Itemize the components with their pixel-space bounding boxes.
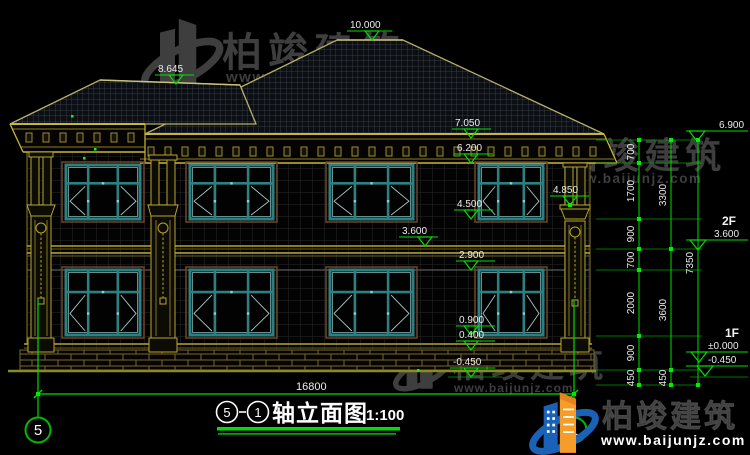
window-grip-dot <box>102 291 104 293</box>
window-frame <box>190 270 273 335</box>
chain-node <box>669 247 673 251</box>
dimension-value: 700 <box>626 251 637 268</box>
window-frame <box>479 270 543 335</box>
floor-label: 1F <box>725 326 739 340</box>
floor-label: 2F <box>722 214 736 228</box>
window-grip-dot <box>370 291 372 293</box>
chain-node <box>696 138 700 142</box>
dentil <box>335 147 341 156</box>
window <box>186 267 277 338</box>
dentil <box>369 147 375 156</box>
level-value: 3.600 <box>714 229 739 240</box>
window-grip-dot <box>87 312 89 314</box>
level-value: ±0.000 <box>708 341 739 352</box>
window <box>186 162 277 222</box>
dentil <box>573 147 579 156</box>
chain-node <box>637 247 641 251</box>
dentil <box>505 147 511 156</box>
dimension-value: 900 <box>626 344 637 361</box>
elevation-value: 4.850 <box>553 185 578 196</box>
window <box>326 267 417 338</box>
dimension-value: 450 <box>626 369 637 386</box>
footer-logo-url: www.baijunjz.com <box>600 432 746 448</box>
dentil <box>216 147 222 156</box>
window-grip-dot <box>117 200 119 202</box>
dentil <box>77 133 83 142</box>
dentil <box>556 147 562 156</box>
elevation-value: 10.000 <box>350 20 381 31</box>
elevation-value: 8.645 <box>158 64 183 75</box>
chain-node <box>637 161 641 165</box>
dentil <box>199 147 205 156</box>
dentil <box>386 147 392 156</box>
window-grip-dot <box>247 312 249 314</box>
title-underline-thin <box>218 433 396 435</box>
window-grip-dot <box>354 200 356 202</box>
chain-node <box>637 368 641 372</box>
chain-node <box>637 268 641 272</box>
dentil <box>233 147 239 156</box>
footer-logo-brand: 柏竣建筑 <box>602 399 738 434</box>
dentil <box>267 147 273 156</box>
chain-node <box>669 138 673 142</box>
window <box>62 267 144 338</box>
window-grip-dot <box>523 312 525 314</box>
window-frame <box>330 270 413 335</box>
window-grip-dot <box>523 200 525 202</box>
window-frame <box>190 165 273 219</box>
elevation-value: 7.050 <box>455 118 480 129</box>
axis-number: 5 <box>34 422 42 439</box>
elevation-value: 0.400 <box>459 330 484 341</box>
dimension-value: 2000 <box>626 291 637 314</box>
window <box>326 162 417 222</box>
elevation-value: 6.200 <box>457 143 482 154</box>
window-frame <box>479 165 543 219</box>
window-grip-dot <box>510 291 512 293</box>
dentil <box>420 147 426 156</box>
plinth <box>20 344 594 370</box>
window-grip-dot <box>510 182 512 184</box>
chain-node <box>669 368 673 372</box>
dentil <box>250 147 256 156</box>
title-scale: 1:100 <box>366 407 404 424</box>
window-frame <box>66 270 140 335</box>
dentil <box>111 133 117 142</box>
total-width-value: 16800 <box>296 381 327 393</box>
window-grip-dot <box>387 312 389 314</box>
window-grip-dot <box>497 312 499 314</box>
dentil <box>301 147 307 156</box>
dentil <box>284 147 290 156</box>
window-grip-dot <box>230 291 232 293</box>
chain-node <box>637 383 641 387</box>
window-grip-dot <box>214 200 216 202</box>
window-grip-dot <box>214 312 216 314</box>
dimension-value: 1700 <box>626 179 637 202</box>
dimension-value: 3300 <box>658 183 669 206</box>
dentil <box>539 147 545 156</box>
dentil <box>182 147 188 156</box>
dentil <box>403 147 409 156</box>
dentil <box>43 133 49 142</box>
dentil <box>60 133 66 142</box>
dimension-value: 7350 <box>685 251 696 274</box>
dentil <box>590 147 596 156</box>
window-grip-dot <box>230 182 232 184</box>
level-value: 6.900 <box>719 120 744 131</box>
dimension-value: 700 <box>626 143 637 160</box>
level-tick <box>568 203 572 207</box>
dimension-value: 450 <box>658 369 669 386</box>
dentil <box>437 147 443 156</box>
dentil <box>488 147 494 156</box>
window-grip-dot <box>387 200 389 202</box>
dentil <box>94 133 100 142</box>
chain-node <box>637 138 641 142</box>
window-grip-dot <box>102 182 104 184</box>
elevation-value: 0.900 <box>459 315 484 326</box>
title-text: 轴立面图 <box>272 400 368 426</box>
window-grip-dot <box>87 200 89 202</box>
dentil <box>26 133 32 142</box>
title-underline-thick <box>217 427 400 431</box>
footer-logo: 柏竣建筑 www.baijunjz.com <box>527 392 746 455</box>
chain-node <box>669 383 673 387</box>
cad-canvas: 柏竣建筑 www.baijunjz.com 柏竣建筑 www.baijunjz.… <box>0 0 750 455</box>
window-grip-dot <box>497 200 499 202</box>
window <box>475 162 547 222</box>
elevation-value: 3.600 <box>402 226 427 237</box>
elevation-drawing: 柏竣建筑 www.baijunjz.com 柏竣建筑 www.baijunjz.… <box>0 0 750 455</box>
chain-node <box>637 217 641 221</box>
dentil <box>352 147 358 156</box>
watermark-url: www.baijunjz.com <box>453 381 574 395</box>
window-grip-dot <box>117 312 119 314</box>
chain-node <box>637 334 641 338</box>
elevation-value: 2.900 <box>459 250 484 261</box>
window <box>475 267 547 338</box>
window-grip-dot <box>370 182 372 184</box>
dimension-value: 900 <box>626 225 637 242</box>
dentil <box>128 133 134 142</box>
window-grip-dot <box>354 312 356 314</box>
elevation-value: -0.450 <box>453 357 482 368</box>
window-frame <box>66 165 140 219</box>
chain-node <box>696 383 700 387</box>
title-axis-end: 1 <box>254 405 261 420</box>
dimension-value: 3600 <box>658 298 669 321</box>
title-axis-start: 5 <box>223 405 230 420</box>
elevation-value: 4.500 <box>457 199 482 210</box>
window <box>62 162 144 222</box>
dentil <box>522 147 528 156</box>
main-cornice <box>140 134 617 163</box>
window-frame <box>330 165 413 219</box>
dentil <box>318 147 324 156</box>
level-value: -0.450 <box>708 355 737 366</box>
window-grip-dot <box>247 200 249 202</box>
